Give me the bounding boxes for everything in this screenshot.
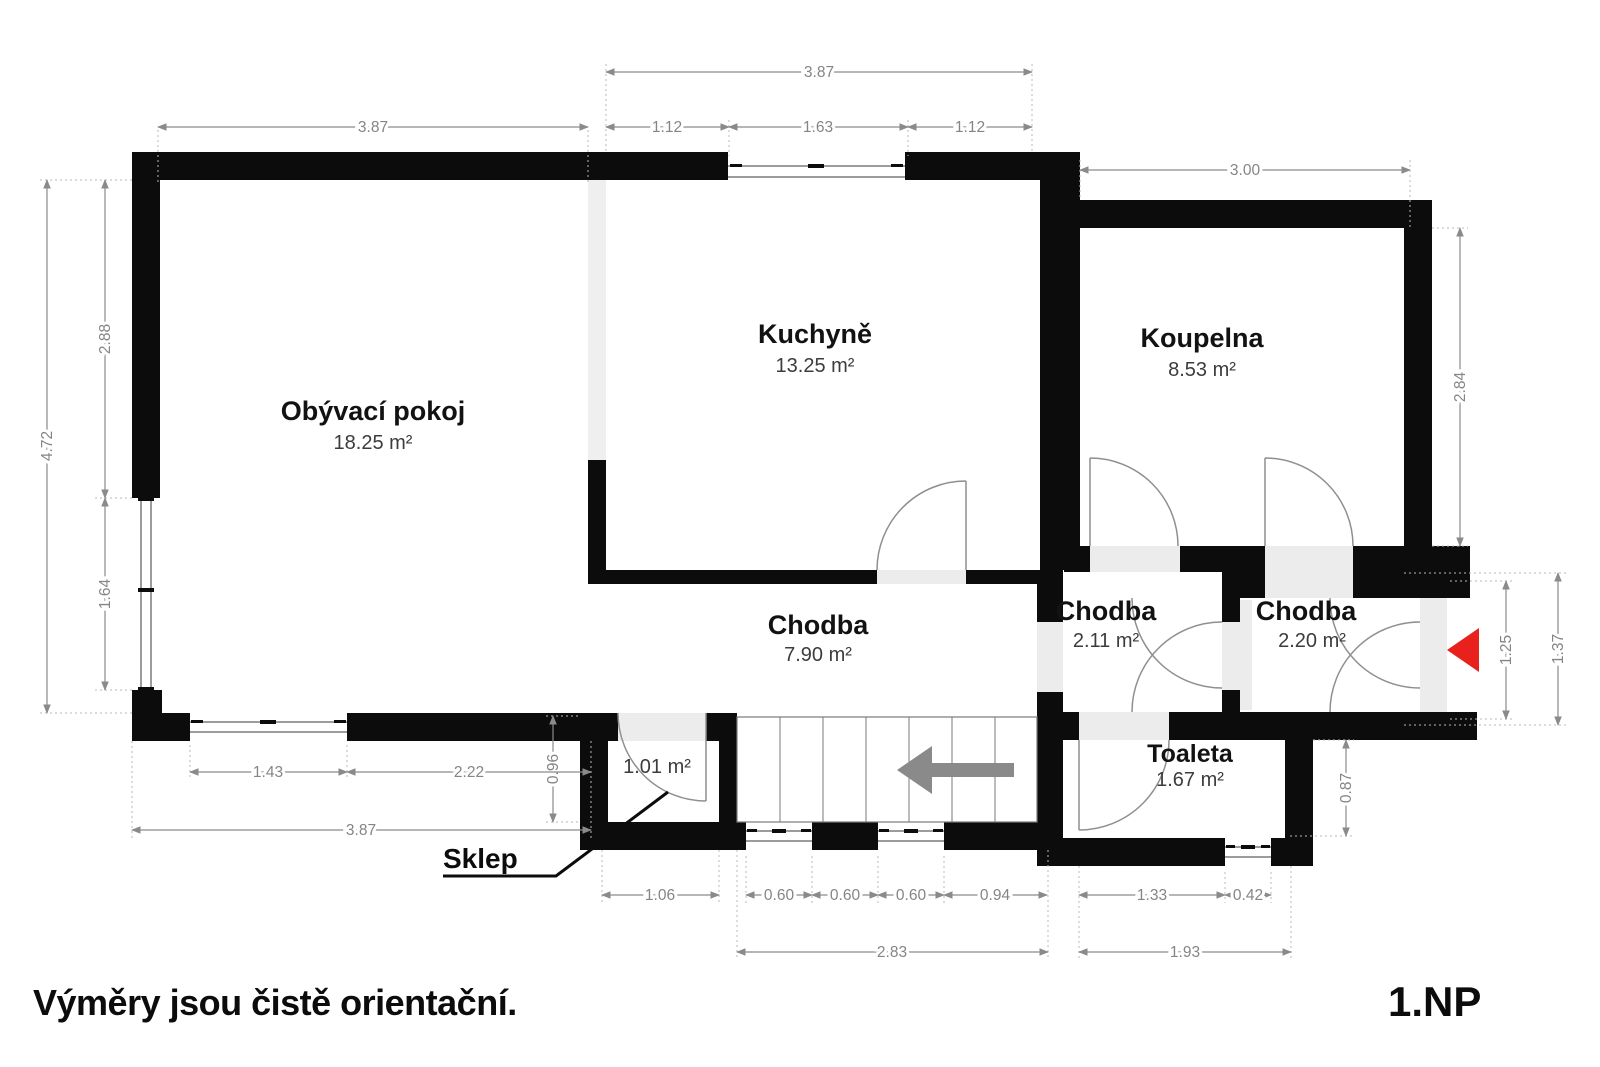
dim-bottom-win1: 0.60 <box>764 887 795 904</box>
dim-living-top: 3.87 <box>358 119 388 136</box>
floor-label: 1.NP <box>1388 978 1481 1025</box>
door-bath-from-hall-a <box>1090 458 1178 546</box>
room-hallway-b-area: 2.20 m² <box>1278 630 1346 652</box>
dim-bottom-right-span: 0.94 <box>980 887 1011 904</box>
room-bathroom-area: 8.53 m² <box>1168 359 1236 381</box>
room-toilet-name: Toaleta <box>1147 740 1234 768</box>
room-cellar-area: 1.01 m² <box>623 756 691 778</box>
room-hallway-name: Chodba <box>768 610 869 640</box>
floorplan-page: 3.87 3.87 1.12 1.63 1.12 3.00 4.72 2.88 … <box>0 0 1600 1067</box>
room-kitchen-area: 13.25 m² <box>776 355 855 377</box>
dim-toilet-side: 0.87 <box>1338 773 1355 803</box>
entrance-arrow-icon <box>1447 628 1479 672</box>
room-hallway: Chodba 7.90 m² <box>768 610 869 666</box>
dim-bottom-cellar: 1.06 <box>645 887 675 904</box>
room-bathroom: Koupelna 8.53 m² <box>1140 323 1264 381</box>
room-bathroom-name: Koupelna <box>1140 323 1264 353</box>
window-stairs-right <box>878 824 944 848</box>
room-kitchen: Kuchyně 13.25 m² <box>758 319 872 377</box>
dim-bath-right: 2.84 <box>1452 372 1469 403</box>
room-toilet: Toaleta 1.67 m² <box>1147 740 1234 791</box>
dim-left-total: 4.72 <box>39 431 56 461</box>
window-kitchen-top <box>728 156 905 182</box>
dim-left-upper: 2.88 <box>97 324 114 354</box>
floorplan-drawing: 3.87 3.87 1.12 1.63 1.12 3.00 4.72 2.88 … <box>0 0 1600 1067</box>
dim-toilet-left: 1.33 <box>1137 887 1167 904</box>
room-living-name: Obývací pokoj <box>281 396 466 426</box>
dim-bottom-win3: 0.60 <box>896 887 927 904</box>
room-hallway-area: 7.90 m² <box>784 644 852 666</box>
room-kitchen-name: Kuchyně <box>758 319 872 349</box>
dim-stairs-total: 2.83 <box>877 944 907 961</box>
dim-kitchen-right: 1.12 <box>955 119 985 136</box>
room-hallway-a: Chodba 2.11 m² <box>1056 596 1157 652</box>
dim-kitchen-window: 1.63 <box>803 119 833 136</box>
room-hallway-a-name: Chodba <box>1056 596 1157 626</box>
dim-bottom-win2: 0.60 <box>830 887 861 904</box>
door-kitchen-hall <box>877 481 966 570</box>
room-toilet-area: 1.67 m² <box>1156 769 1224 791</box>
door-bath-from-entry <box>1265 458 1353 546</box>
dim-bottom-wall-left: 2.22 <box>454 764 484 781</box>
windows <box>134 156 1271 864</box>
dim-bottom-window-left: 1.43 <box>253 764 283 781</box>
staircase <box>737 717 1037 822</box>
window-toilet <box>1225 840 1271 864</box>
dim-entry-inner: 1.25 <box>1498 635 1515 665</box>
dim-kitchen-total: 3.87 <box>804 64 834 81</box>
room-hallway-b-name: Chodba <box>1256 596 1357 626</box>
room-cellar-name: Sklep <box>443 843 518 874</box>
dim-toilet-total: 1.93 <box>1170 944 1200 961</box>
disclaimer-text: Výměry jsou čistě orientační. <box>33 982 517 1023</box>
thresholds-and-passages <box>588 180 1447 741</box>
room-hallway-b: Chodba 2.20 m² <box>1256 596 1357 652</box>
window-left-living <box>134 498 158 690</box>
dim-cellar-step: 0.96 <box>545 754 562 784</box>
dim-bottom-left-total: 3.87 <box>346 822 376 839</box>
dim-toilet-window: 0.42 <box>1233 887 1263 904</box>
room-living-area: 18.25 m² <box>334 432 413 454</box>
window-stairs-left <box>746 824 812 848</box>
dim-entry-outer: 1.37 <box>1550 634 1567 664</box>
dim-kitchen-left: 1.12 <box>652 119 682 136</box>
room-hallway-a-area: 2.11 m² <box>1073 630 1140 652</box>
dim-bath-top: 3.00 <box>1230 162 1261 179</box>
dim-left-window: 1.64 <box>97 579 114 610</box>
room-living: Obývací pokoj 18.25 m² <box>281 396 466 454</box>
window-bottom-living <box>190 715 347 739</box>
